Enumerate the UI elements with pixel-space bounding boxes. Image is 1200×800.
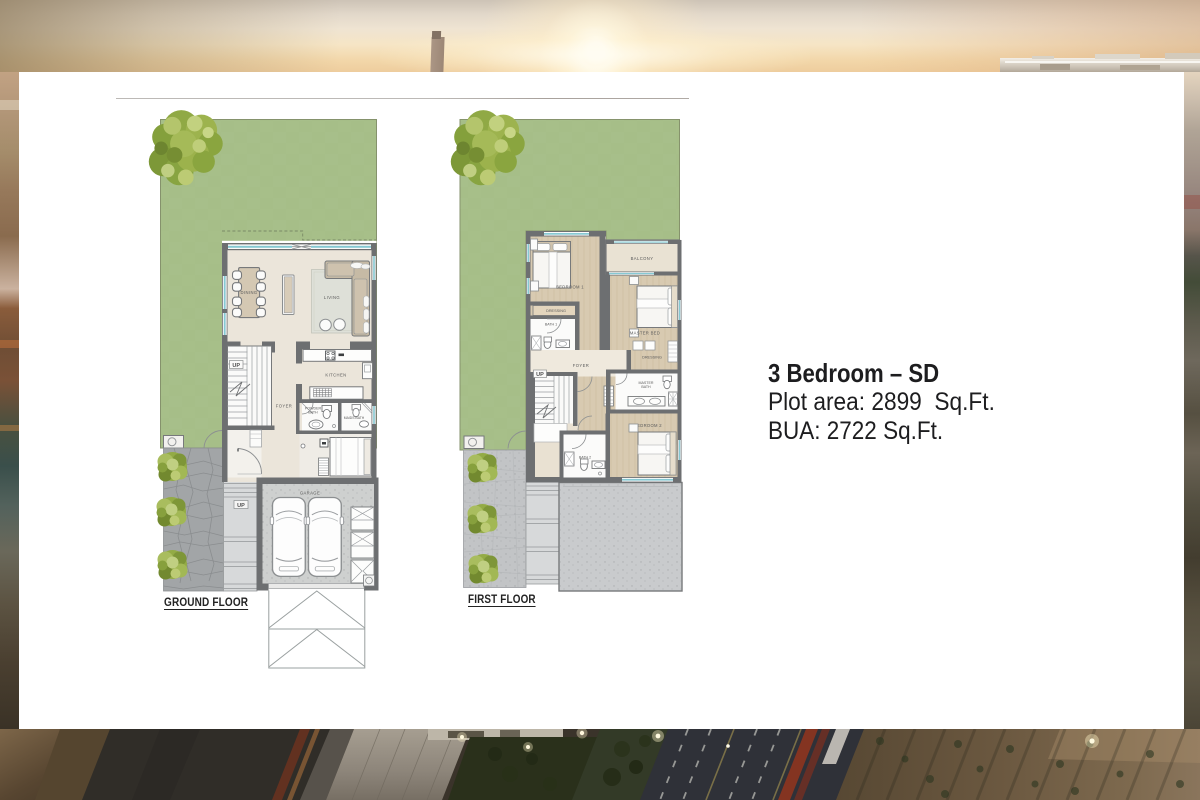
svg-text:BEDROOM 1: BEDROOM 1 [556,285,584,290]
svg-text:BATH: BATH [641,385,651,389]
svg-text:FOYER: FOYER [276,404,292,409]
svg-text:FOYER: FOYER [573,363,589,368]
svg-text:DRESSING: DRESSING [642,356,662,360]
svg-text:UP: UP [536,372,544,378]
svg-text:UP: UP [232,363,240,369]
svg-text:LIVING: LIVING [324,295,340,300]
svg-text:BATH: BATH [308,411,318,415]
svg-text:UP: UP [237,503,245,509]
svg-text:DINING: DINING [240,290,257,295]
svg-text:GARAGE: GARAGE [300,491,320,496]
svg-text:KITCHEN: KITCHEN [325,373,346,378]
svg-text:MAIDS BATH: MAIDS BATH [344,416,365,420]
svg-text:DRESSING: DRESSING [546,309,566,313]
svg-text:MASTER BED: MASTER BED [630,331,660,336]
svg-text:BATH 1: BATH 1 [545,323,557,327]
svg-text:BALCONY: BALCONY [631,256,654,261]
